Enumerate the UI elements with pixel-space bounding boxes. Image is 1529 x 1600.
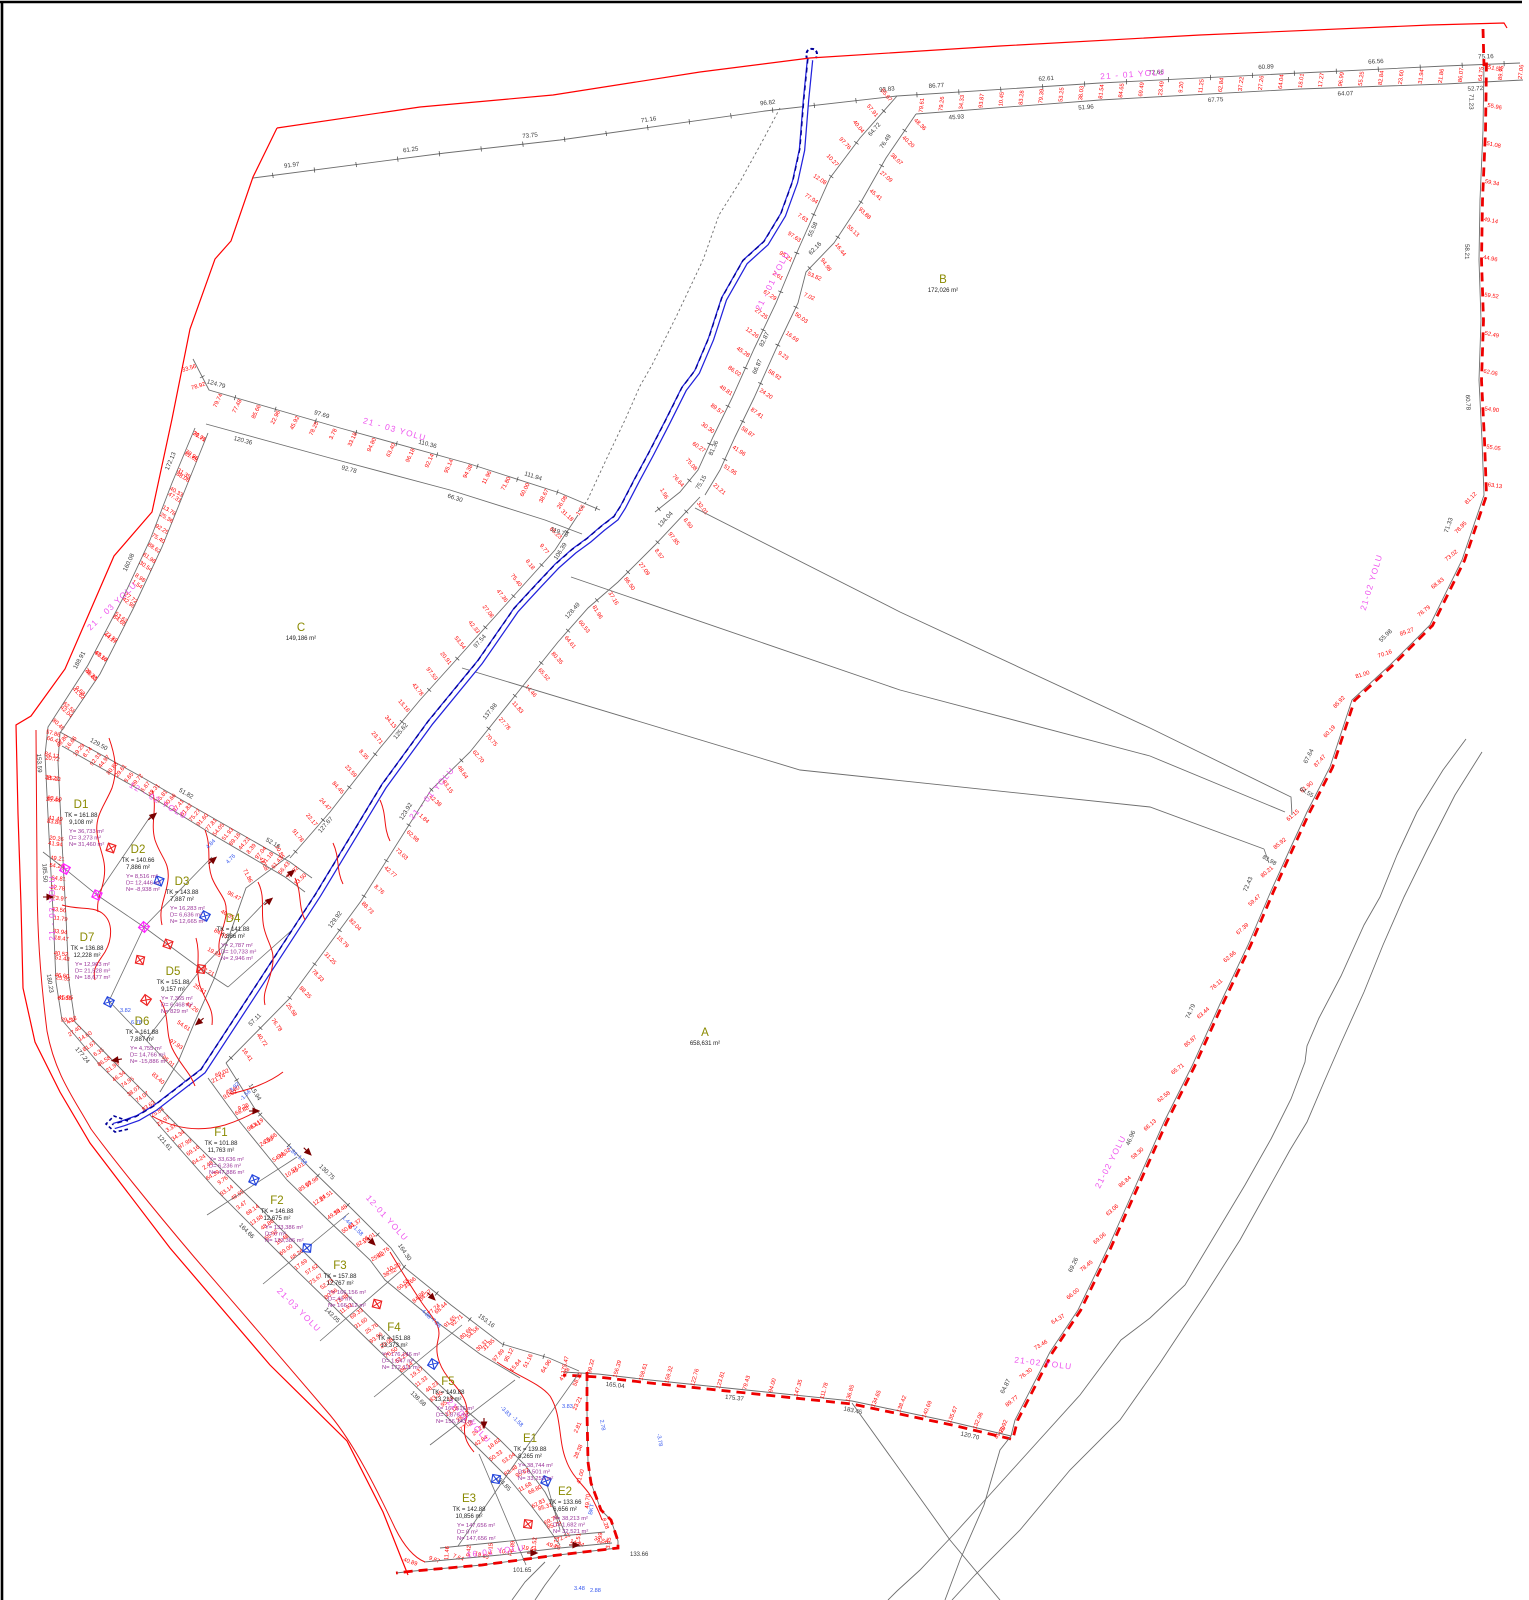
svg-text:67.75: 67.75	[1208, 96, 1224, 104]
svg-text:60.89: 60.89	[1258, 63, 1274, 71]
svg-text:7,887 m²: 7,887 m²	[170, 897, 194, 903]
svg-text:Y= 133,386 m²: Y= 133,386 m²	[265, 1225, 303, 1231]
svg-text:N= 2,946 m²: N= 2,946 m²	[221, 956, 253, 962]
svg-text:N= -15,886 m²: N= -15,886 m²	[130, 1059, 167, 1065]
svg-text:D= 46 m²: D= 46 m²	[328, 1297, 352, 1303]
svg-text:Y= 176,146 m²: Y= 176,146 m²	[382, 1352, 420, 1358]
svg-text:3.82: 3.82	[120, 1008, 131, 1014]
svg-text:TK = 101.88: TK = 101.88	[205, 1141, 239, 1147]
svg-text:5.71: 5.71	[554, 1536, 561, 1548]
svg-text:51.96: 51.96	[1078, 104, 1094, 112]
svg-text:D= 6,636 m²: D= 6,636 m²	[170, 913, 202, 919]
svg-text:Y= 2,787 m²: Y= 2,787 m²	[221, 943, 253, 949]
svg-text:TK = 143.88: TK = 143.88	[166, 890, 200, 896]
svg-text:Y= 33,636 m²: Y= 33,636 m²	[209, 1157, 244, 1163]
svg-text:TK = 146.88: TK = 146.88	[261, 1209, 295, 1215]
svg-text:3.83: 3.83	[562, 1404, 573, 1410]
svg-text:8,265 m²: 8,265 m²	[518, 1454, 542, 1460]
svg-text:N= 133,386 m²: N= 133,386 m²	[265, 1238, 304, 1244]
svg-text:Y= 7,365 m²: Y= 7,365 m²	[161, 996, 193, 1002]
svg-text:N= 18,677 m²: N= 18,677 m²	[75, 975, 110, 981]
svg-text:N= 31,460 m²: N= 31,460 m²	[69, 842, 104, 848]
svg-text:101.65: 101.65	[513, 1568, 532, 1574]
svg-text:N= 829 m²: N= 829 m²	[161, 1009, 188, 1015]
svg-text:A: A	[701, 1027, 709, 1039]
svg-text:TK = 161.88: TK = 161.88	[126, 1030, 160, 1036]
svg-text:Y= 38,213 m²: Y= 38,213 m²	[553, 1516, 588, 1522]
svg-text:D= 14,766 m²: D= 14,766 m²	[130, 1053, 165, 1059]
svg-text:133.66: 133.66	[630, 1552, 649, 1558]
svg-text:66.56: 66.56	[1368, 58, 1384, 66]
svg-text:N= 47,886 m²: N= 47,886 m²	[209, 1170, 244, 1176]
svg-text:149,186 m²: 149,186 m²	[286, 636, 316, 642]
svg-text:D= 0 m²: D= 0 m²	[265, 1232, 286, 1238]
svg-text:52.72: 52.72	[1467, 85, 1483, 93]
svg-text:TK = 157.88: TK = 157.88	[324, 1274, 358, 1280]
svg-text:N= 172,111 m²: N= 172,111 m²	[382, 1365, 420, 1371]
svg-text:D1: D1	[74, 799, 89, 811]
svg-text:D5: D5	[166, 966, 181, 978]
svg-text:D= 21,528 m²: D= 21,528 m²	[75, 969, 110, 975]
svg-text:C: C	[297, 622, 305, 634]
svg-text:TK = 139.88: TK = 139.88	[514, 1447, 548, 1453]
svg-text:10,856 m²: 10,856 m²	[455, 1514, 482, 1520]
svg-text:D= 6,468 m²: D= 6,468 m²	[161, 1003, 193, 1009]
svg-text:N= 33,253 m²: N= 33,253 m²	[518, 1476, 553, 1482]
svg-text:9,157 m²: 9,157 m²	[161, 987, 185, 993]
svg-text:TK = 142.88: TK = 142.88	[453, 1507, 487, 1513]
svg-text:D2: D2	[131, 844, 146, 856]
svg-text:N= 32,521 m²: N= 32,521 m²	[553, 1529, 588, 1535]
svg-text:TK = 140.66: TK = 140.66	[122, 858, 156, 864]
svg-text:D= 6,236 m²: D= 6,236 m²	[209, 1164, 241, 1170]
svg-text:F1: F1	[214, 1127, 227, 1139]
svg-text:64.07: 64.07	[1337, 90, 1353, 98]
svg-text:D= 12,446 m²: D= 12,446 m²	[126, 881, 161, 887]
svg-text:172,026 m²: 172,026 m²	[928, 288, 958, 294]
svg-text:TK = 136.88: TK = 136.88	[71, 946, 105, 952]
svg-text:6.78: 6.78	[131, 1020, 142, 1026]
svg-text:2.99: 2.99	[597, 1532, 604, 1544]
svg-text:12,228 m²: 12,228 m²	[73, 953, 100, 959]
svg-text:2.88: 2.88	[590, 1588, 601, 1594]
svg-text:F3: F3	[333, 1260, 346, 1272]
svg-text:E1: E1	[523, 1433, 537, 1445]
svg-text:TK = 161.88: TK = 161.88	[65, 813, 99, 819]
svg-text:D= 1,682 m²: D= 1,682 m²	[553, 1523, 585, 1529]
svg-text:6,656 m²: 6,656 m²	[553, 1507, 577, 1513]
svg-text:D= 10,733 m²: D= 10,733 m²	[221, 950, 256, 956]
svg-text:Y= 12,963 m²: Y= 12,963 m²	[75, 962, 110, 968]
svg-text:658,631 m²: 658,631 m²	[690, 1041, 720, 1047]
svg-text:N= 166,112 m²: N= 166,112 m²	[328, 1303, 366, 1309]
svg-text:F5: F5	[441, 1376, 454, 1388]
svg-text:3.48: 3.48	[574, 1586, 585, 1592]
svg-text:N= 147,656 m²: N= 147,656 m²	[457, 1536, 496, 1542]
svg-text:D3: D3	[175, 876, 190, 888]
svg-text:TK = 133.66: TK = 133.66	[549, 1500, 583, 1506]
svg-text:D= 0 m²: D= 0 m²	[457, 1530, 478, 1536]
svg-text:62.61: 62.61	[1038, 75, 1054, 83]
svg-text:E3: E3	[462, 1493, 476, 1505]
svg-text:61.55: 61.55	[57, 996, 72, 1002]
svg-text:F2: F2	[270, 1195, 283, 1207]
svg-text:21 - 03 YOLU: 21 - 03 YOLU	[47, 875, 57, 940]
svg-text:60.78: 60.78	[1464, 395, 1472, 411]
svg-text:7,886 m²: 7,886 m²	[126, 865, 150, 871]
svg-text:D= 8,501 m²: D= 8,501 m²	[518, 1470, 550, 1476]
svg-text:Y= 8,516 m²: Y= 8,516 m²	[126, 874, 158, 880]
svg-text:D4: D4	[226, 913, 241, 925]
svg-text:Y= 166,156 m²: Y= 166,156 m²	[328, 1290, 366, 1296]
svg-text:TK = 151.88: TK = 151.88	[157, 980, 191, 986]
svg-text:TK = 149.88: TK = 149.88	[432, 1390, 466, 1396]
svg-text:11.46: 11.46	[444, 1546, 451, 1560]
svg-text:Y= 16,283 m²: Y= 16,283 m²	[170, 906, 205, 912]
svg-text:12,767 m²: 12,767 m²	[326, 1281, 353, 1287]
svg-text:Y= 4,755 m²: Y= 4,755 m²	[130, 1046, 162, 1052]
svg-text:9,108 m²: 9,108 m²	[69, 820, 93, 826]
svg-text:TK = 151.88: TK = 151.88	[378, 1336, 412, 1342]
svg-text:7,886 m²: 7,886 m²	[221, 934, 245, 940]
svg-text:12,675 m²: 12,675 m²	[263, 1216, 290, 1222]
svg-text:71.23: 71.23	[1467, 94, 1474, 110]
svg-text:B: B	[939, 274, 947, 286]
svg-text:D= 3,273 m²: D= 3,273 m²	[69, 836, 101, 842]
svg-text:N= -8,938 m²: N= -8,938 m²	[126, 887, 160, 893]
svg-text:N= 12,665 m²: N= 12,665 m²	[170, 919, 205, 925]
svg-text:58.21: 58.21	[1463, 244, 1470, 260]
svg-text:Y= 147,656 m²: Y= 147,656 m²	[457, 1523, 495, 1529]
svg-text:TK = 141.88: TK = 141.88	[217, 927, 251, 933]
svg-text:F4: F4	[387, 1322, 401, 1334]
svg-text:D= 1,647 m²: D= 1,647 m²	[382, 1359, 414, 1365]
svg-text:11.52: 11.52	[532, 1537, 539, 1551]
svg-text:Y= 38,744 m²: Y= 38,744 m²	[518, 1463, 553, 1469]
svg-text:13,373 m²: 13,373 m²	[380, 1343, 407, 1349]
svg-text:75.16: 75.16	[1478, 53, 1494, 61]
svg-text:D7: D7	[80, 932, 95, 944]
svg-text:7,887 m²: 7,887 m²	[130, 1037, 154, 1043]
svg-text:45.93: 45.93	[948, 113, 964, 121]
svg-text:11,763 m²: 11,763 m²	[208, 1148, 235, 1154]
svg-text:E2: E2	[558, 1486, 572, 1498]
svg-text:86.77: 86.77	[928, 82, 944, 90]
svg-text:Y= 36,733 m²: Y= 36,733 m²	[69, 829, 104, 835]
